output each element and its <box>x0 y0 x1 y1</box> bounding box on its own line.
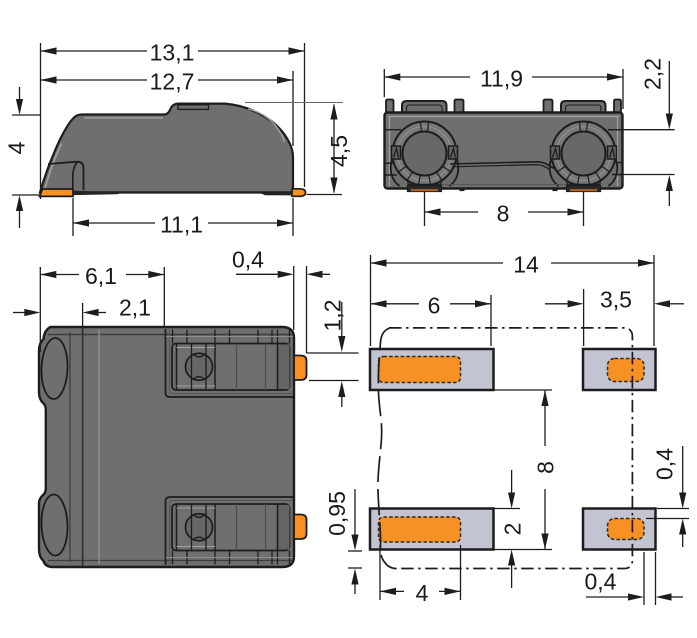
svg-text:6: 6 <box>428 292 441 318</box>
svg-text:4: 4 <box>416 580 429 606</box>
svg-text:8: 8 <box>497 201 510 227</box>
svg-text:14: 14 <box>513 252 539 278</box>
svg-text:8: 8 <box>532 461 558 474</box>
svg-text:2,1: 2,1 <box>119 295 151 321</box>
svg-text:6,1: 6,1 <box>85 263 117 289</box>
svg-text:2: 2 <box>500 523 526 536</box>
svg-text:12,7: 12,7 <box>150 69 195 95</box>
svg-text:0,4: 0,4 <box>585 569 617 595</box>
svg-text:4,5: 4,5 <box>326 135 352 167</box>
svg-text:4: 4 <box>4 141 30 154</box>
svg-text:13,1: 13,1 <box>150 40 195 66</box>
svg-text:11,9: 11,9 <box>480 66 523 92</box>
svg-text:2,2: 2,2 <box>639 58 665 90</box>
svg-text:11,1: 11,1 <box>160 212 203 238</box>
svg-text:0,4: 0,4 <box>232 247 264 273</box>
svg-text:0,4: 0,4 <box>651 448 677 480</box>
svg-text:0,95: 0,95 <box>324 491 350 536</box>
svg-text:3,5: 3,5 <box>600 287 632 313</box>
